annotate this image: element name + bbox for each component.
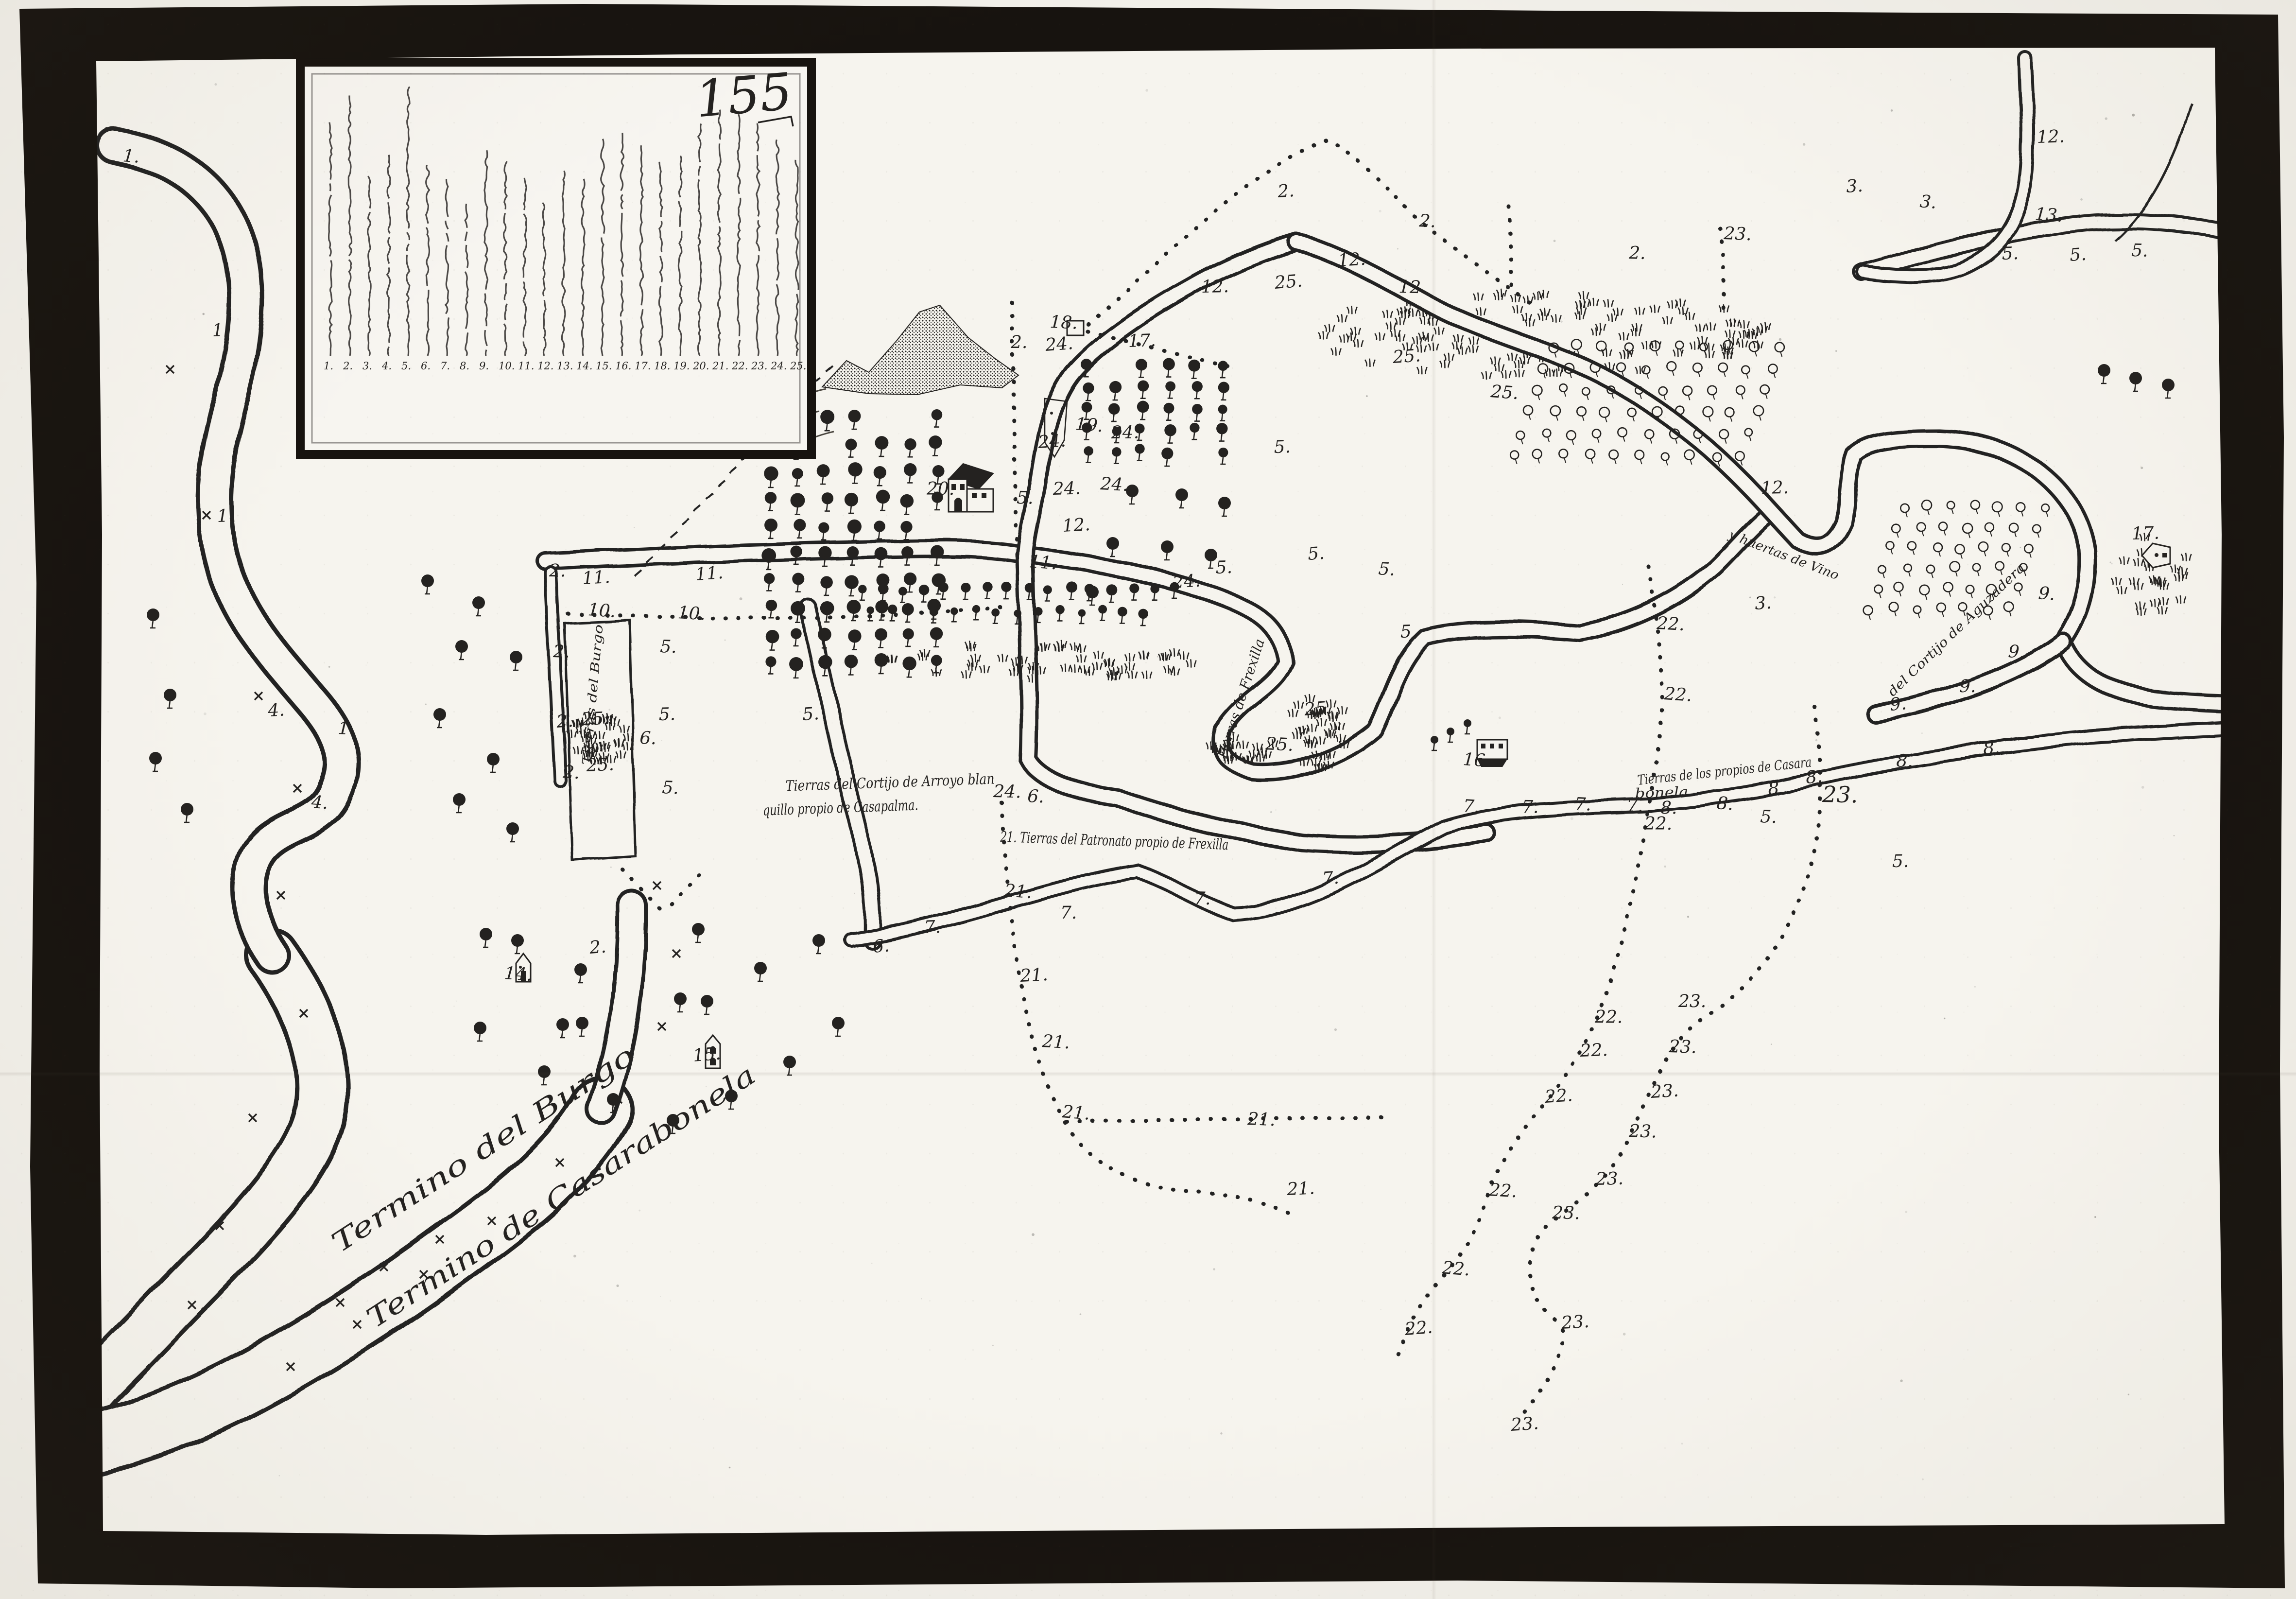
legend-entry-number-20: 20.	[692, 360, 709, 372]
map-number-12: 12.	[1761, 478, 1789, 498]
map-number-16: 16.	[1462, 749, 1491, 771]
age-speck	[2132, 114, 2135, 117]
legend-entry-number-19: 19.	[673, 360, 690, 372]
age-speck	[214, 83, 217, 86]
legend-entry-number-13: 13.	[557, 360, 573, 372]
age-speck	[1499, 716, 1501, 719]
map-number-5: 5.	[1760, 807, 1778, 827]
age-speck	[1774, 596, 1776, 598]
legend-entry-number-14: 14.	[576, 360, 592, 372]
map-number-7: 7.	[1522, 797, 1539, 817]
age-speck	[1032, 1233, 1035, 1236]
map-number-5: 5.	[1307, 543, 1325, 564]
map-number-5: 5.	[1215, 557, 1233, 578]
map-number-21: 21.	[1003, 881, 1033, 903]
legend-entry-number-15: 15.	[596, 360, 612, 372]
age-speck	[328, 666, 330, 668]
legend-box: 1.2.3.4.5.6.7.8.9.10.11.12.13.14.15.16.1…	[300, 62, 811, 454]
map-number-24: 24.	[1172, 571, 1201, 592]
map-number-2: 2.	[562, 762, 580, 783]
map-number-12: 12.	[1398, 277, 1427, 298]
map-drawing: 1.1.1.1.4.4.2.2.2.2.2.2.2.2.2.3.3.3.5.5.…	[0, 0, 2296, 1599]
map-number-2: 2.	[1418, 211, 1436, 232]
map-number-21: 21.	[1041, 1031, 1070, 1053]
age-speck	[609, 709, 611, 711]
legend-entry-number-12: 12.	[537, 360, 553, 372]
age-speck	[639, 1210, 640, 1212]
map-number-23: 23.	[1723, 224, 1752, 244]
map-number-6: 6.	[872, 936, 890, 957]
map-number-25: 25.	[1265, 734, 1294, 755]
age-speck	[221, 1297, 223, 1299]
legend-entry-number-24: 24.	[770, 360, 787, 372]
age-speck	[425, 703, 427, 705]
age-speck	[1080, 1313, 1082, 1315]
map-number-3: 3.	[1919, 191, 1937, 213]
map-number-8: 8.	[1716, 793, 1734, 815]
age-speck	[2080, 198, 2083, 201]
legend-entry-number-3: 3.	[363, 360, 372, 372]
legend-entry-number-10: 10.	[499, 360, 515, 372]
legend-entry-number-18: 18.	[654, 360, 670, 372]
map-number-7: 7.	[924, 917, 941, 938]
map-number-22: 22.	[1488, 1180, 1518, 1201]
map-number-25: 25.	[1273, 271, 1303, 293]
map-number-2: 2.	[549, 561, 566, 581]
map-number-24: 24.	[1111, 423, 1139, 443]
age-speck	[573, 1255, 576, 1258]
age-speck	[871, 1263, 872, 1264]
map-number-23: 23.	[1650, 1080, 1679, 1102]
manuscript-map-page: 1.1.1.1.4.4.2.2.2.2.2.2.2.2.2.3.3.3.5.5.…	[0, 0, 2296, 1599]
map-number-5: 5.	[1274, 437, 1291, 457]
map-number-7: 7.	[1194, 888, 1211, 909]
map-number-8: 8.	[1983, 738, 2001, 759]
age-speck	[1922, 1478, 1924, 1480]
map-number-2: 2.	[588, 937, 607, 958]
map-number-10: 10.	[587, 600, 616, 622]
map-number-21: 21.	[1247, 1109, 1276, 1130]
map-number-25: 25.	[1303, 698, 1332, 720]
map-number-7: 7.	[1322, 868, 1340, 889]
map-number-2: 2.	[555, 711, 574, 732]
age-speck	[2111, 563, 2112, 564]
age-speck	[1145, 89, 1148, 92]
legend-entry-number-1: 1.	[324, 360, 333, 372]
map-number-7: 7.	[1462, 796, 1480, 817]
map-number-23: 23.	[1510, 1413, 1539, 1435]
map-number-13: 13.	[2034, 204, 2063, 226]
age-speck	[1900, 1379, 1902, 1382]
map-number-23: 23.	[1668, 1037, 1697, 1058]
age-speck	[1560, 320, 1562, 322]
legend-entry-number-2: 2.	[343, 360, 353, 372]
map-number-12: 12.	[1337, 249, 1366, 271]
age-speck	[1213, 1268, 1215, 1270]
age-speck	[2094, 1216, 2096, 1218]
age-speck	[2046, 460, 2047, 461]
map-number-22: 22.	[1403, 1317, 1433, 1339]
age-speck	[1779, 338, 1781, 341]
map-number-6: 6.	[639, 728, 657, 748]
legend-entry-number-11: 11.	[518, 360, 534, 372]
map-number-5: 5.	[658, 704, 675, 725]
age-speck	[1571, 817, 1573, 820]
map-number-2: 2.	[552, 642, 570, 662]
map-number-22: 22.	[1594, 1007, 1623, 1027]
map-number-1: 1.	[338, 718, 355, 739]
map-number-22: 22.	[1663, 684, 1692, 706]
map-number-22: 22.	[1656, 613, 1685, 635]
map-number-1: 1.	[122, 146, 140, 167]
age-speck	[1950, 79, 1951, 81]
age-speck	[1739, 882, 1740, 883]
map-number-23: 23.	[1552, 1203, 1580, 1223]
label-tierras-propios-line2: bonela.	[1635, 783, 1693, 801]
legend-entry-number-16: 16.	[615, 360, 631, 372]
map-number-5: 5.	[1892, 852, 1909, 871]
age-speck	[1974, 986, 1976, 988]
map-number-5: 5.	[802, 704, 820, 725]
age-speck	[2174, 835, 2175, 836]
map-number-9: 9.	[2037, 583, 2056, 605]
map-number-7: 7.	[1574, 794, 1592, 815]
age-speck	[1623, 1333, 1626, 1336]
age-speck	[2020, 547, 2021, 548]
map-number-5: 5.	[1400, 622, 1417, 642]
age-speck	[1687, 916, 1689, 918]
map-number-12: 12.	[1062, 515, 1090, 536]
map-number-9: 9.	[1959, 677, 1976, 696]
map-number-21: 21.	[1061, 1102, 1090, 1124]
age-speck	[1622, 584, 1623, 585]
map-number-2: 2.	[1010, 332, 1027, 352]
map-number-11: 11.	[695, 563, 724, 585]
map-number-9: 9.	[1889, 694, 1907, 715]
map-number-23: 23.	[1560, 1312, 1590, 1333]
map-number-5: 5.	[2069, 244, 2087, 265]
map-number-23: 23.	[1628, 1121, 1657, 1142]
legend-entry-number-9: 9.	[479, 360, 489, 372]
age-speck	[279, 1475, 280, 1477]
age-speck	[1815, 739, 1817, 741]
map-number-5: 5.	[660, 637, 677, 657]
map-number-24: 24.	[1044, 333, 1074, 355]
age-speck	[2105, 117, 2107, 120]
age-speck	[1381, 1309, 1381, 1310]
legend-entry-number-21: 21.	[712, 360, 728, 372]
age-speck	[1554, 240, 1556, 242]
map-number-2: 2.	[1628, 243, 1646, 263]
map-number-25: 25.	[1489, 382, 1519, 403]
map-number-5: 5.	[1017, 488, 1034, 508]
map-number-24: 24.	[1100, 474, 1129, 495]
map-number-19: 19.	[1074, 414, 1104, 436]
map-number-23: 23.	[1822, 781, 1858, 808]
map-number-5: 5.	[2131, 241, 2148, 261]
age-speck	[661, 740, 662, 741]
map-number-2: 2.	[1277, 181, 1295, 202]
age-speck	[1270, 811, 1272, 813]
map-number-9: 9.	[2007, 642, 2025, 662]
map-number-11: 11.	[582, 567, 610, 589]
map-number-4: 4.	[310, 792, 328, 813]
age-speck	[992, 1345, 994, 1346]
legend-entry-number-23: 23.	[751, 360, 767, 372]
age-speck	[2110, 561, 2111, 563]
age-speck	[854, 893, 855, 894]
map-number-5: 5.	[2002, 243, 2019, 264]
age-speck	[729, 1467, 731, 1469]
map-number-22: 22.	[1544, 1085, 1573, 1107]
age-speck	[1944, 1018, 1945, 1019]
age-speck	[1157, 656, 1158, 658]
age-speck	[1220, 1432, 1222, 1434]
map-number-23: 23.	[1678, 991, 1706, 1011]
map-number-10: 10.	[677, 603, 706, 625]
age-speck	[1379, 210, 1381, 212]
age-speck	[616, 1285, 619, 1287]
age-speck	[740, 597, 742, 600]
legend-entry-number-4: 4.	[381, 360, 392, 372]
map-number-12: 12.	[1201, 277, 1229, 297]
age-speck	[1891, 109, 1893, 112]
age-speck	[2128, 1394, 2129, 1395]
map-number-24: 24.	[1037, 431, 1067, 452]
map-number-17: 17.	[2131, 523, 2159, 544]
map-number-8: 8.	[1896, 751, 1914, 771]
map-number-4: 4.	[267, 700, 285, 721]
age-speck	[1681, 1443, 1683, 1444]
legend-entry-number-5: 5.	[401, 360, 411, 372]
age-speck	[703, 1419, 704, 1420]
age-speck	[1921, 732, 1923, 734]
legend-entry-number-17: 17.	[635, 360, 651, 372]
age-speck	[610, 867, 612, 868]
age-speck	[204, 713, 207, 715]
age-speck	[1664, 866, 1666, 868]
age-speck	[921, 1298, 922, 1299]
map-number-15: 15.	[692, 1043, 721, 1066]
age-speck	[660, 1296, 661, 1297]
age-speck	[2141, 786, 2144, 789]
map-number-22: 22.	[1644, 814, 1672, 834]
map-number-24: 24.	[1052, 479, 1081, 500]
map-number-1: 1.	[217, 506, 234, 526]
map-number-23: 23.	[1595, 1169, 1623, 1189]
map-number-5: 5.	[1378, 559, 1396, 580]
age-speck	[724, 639, 726, 641]
age-speck	[456, 1001, 457, 1002]
map-number-21: 21.	[1019, 965, 1048, 986]
map-number-1: 1.	[212, 320, 229, 341]
map-number-6: 6.	[1027, 786, 1045, 807]
map-number-12: 12.	[2037, 126, 2065, 147]
map-number-21: 21.	[1286, 1178, 1315, 1199]
map-number-25: 25.	[1392, 346, 1421, 367]
age-speck	[1771, 1043, 1772, 1044]
legend-entry-number-25: 25.	[790, 360, 806, 372]
legend-entry-number-22: 22.	[731, 360, 748, 372]
map-number-17: 17.	[1128, 330, 1157, 351]
map-number-14: 14.	[503, 963, 533, 985]
age-speck	[202, 313, 205, 315]
map-number-20: 20.	[926, 479, 954, 499]
age-speck	[1366, 395, 1368, 397]
age-speck	[1999, 145, 2000, 146]
age-speck	[1905, 1211, 1907, 1213]
map-number-18: 18.	[1050, 312, 1078, 333]
map-number-5: 5.	[662, 778, 679, 798]
age-speck	[1397, 248, 1398, 250]
map-number-8: 8.	[1767, 778, 1785, 799]
map-number-22: 22.	[1579, 1040, 1608, 1061]
legend-entry-number-7: 7.	[440, 360, 450, 372]
map-number-3: 3.	[1846, 176, 1864, 197]
map-number-24: 24.	[993, 782, 1021, 802]
map-number-11: 11.	[1028, 552, 1057, 574]
map-number-3: 3.	[1754, 593, 1772, 614]
age-speck	[1835, 350, 1837, 352]
map-number-7: 7.	[1060, 903, 1077, 923]
age-speck	[1749, 597, 1751, 599]
legend-entry-number-6: 6.	[421, 360, 431, 372]
age-speck	[634, 527, 635, 528]
age-speck	[1803, 143, 1805, 145]
map-number-22: 22.	[1441, 1258, 1470, 1280]
age-speck	[1444, 612, 1445, 613]
age-speck	[2141, 467, 2143, 469]
age-speck	[1334, 1028, 1337, 1031]
legend-entry-number-8: 8.	[460, 360, 469, 372]
